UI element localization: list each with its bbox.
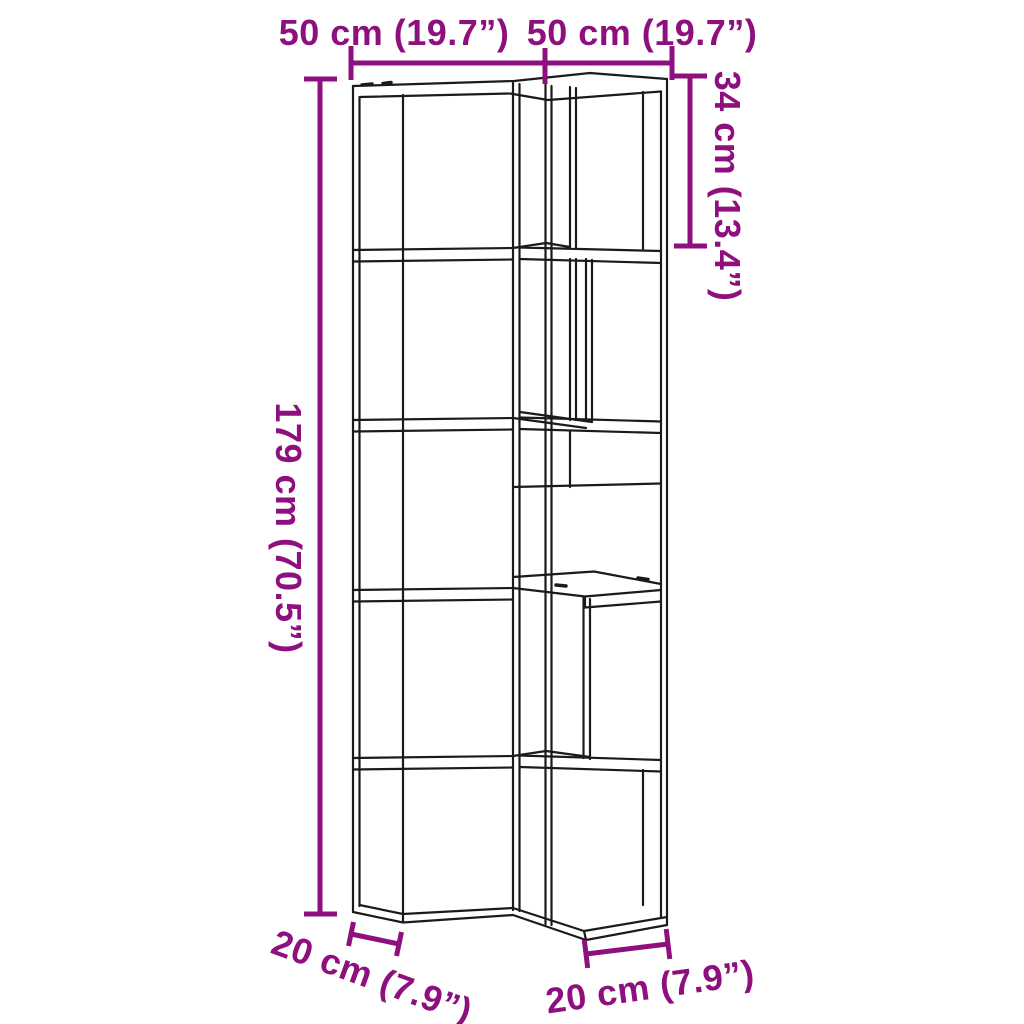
dim-label-top-tier-height: 34 cm (13.4”)	[706, 71, 748, 302]
shelf2-lines	[353, 412, 661, 433]
shelf4-lines	[353, 751, 661, 772]
shelf1-lines	[353, 243, 661, 263]
tier1-verticals	[570, 87, 643, 249]
dim-label-top-left-width: 50 cm (19.7”)	[279, 12, 510, 54]
dim-bottom-right-line	[586, 944, 668, 954]
dim-line-bottom-right-depth	[584, 929, 670, 968]
tier4-box-verticals	[584, 597, 591, 759]
tier2-verticals	[570, 259, 592, 421]
corner-front-left-vertical	[513, 83, 520, 911]
dim-label-top-right-width: 50 cm (19.7”)	[527, 12, 758, 54]
tier3-back-shelf-edge	[513, 484, 661, 488]
diagram-canvas: 50 cm (19.7”) 50 cm (19.7”) 34 cm (13.4”…	[0, 0, 1024, 1024]
base-left-lines	[353, 905, 513, 923]
shelf-top-outer-edge	[353, 73, 667, 86]
corner-bookshelf-diagram-svg	[0, 0, 1024, 1024]
bookshelf-line-drawing	[353, 73, 667, 940]
corner-seam-verticals	[546, 79, 552, 925]
base-right-lines	[513, 908, 667, 940]
shelf-top-slab-underside	[360, 92, 662, 101]
shelf3-lines	[353, 572, 661, 608]
dim-line-top-tier-height	[674, 76, 707, 246]
dim-label-overall-height: 179 cm (70.5”)	[267, 402, 309, 653]
dim-bottom-left-line	[351, 934, 399, 944]
dimension-lines	[304, 46, 707, 968]
